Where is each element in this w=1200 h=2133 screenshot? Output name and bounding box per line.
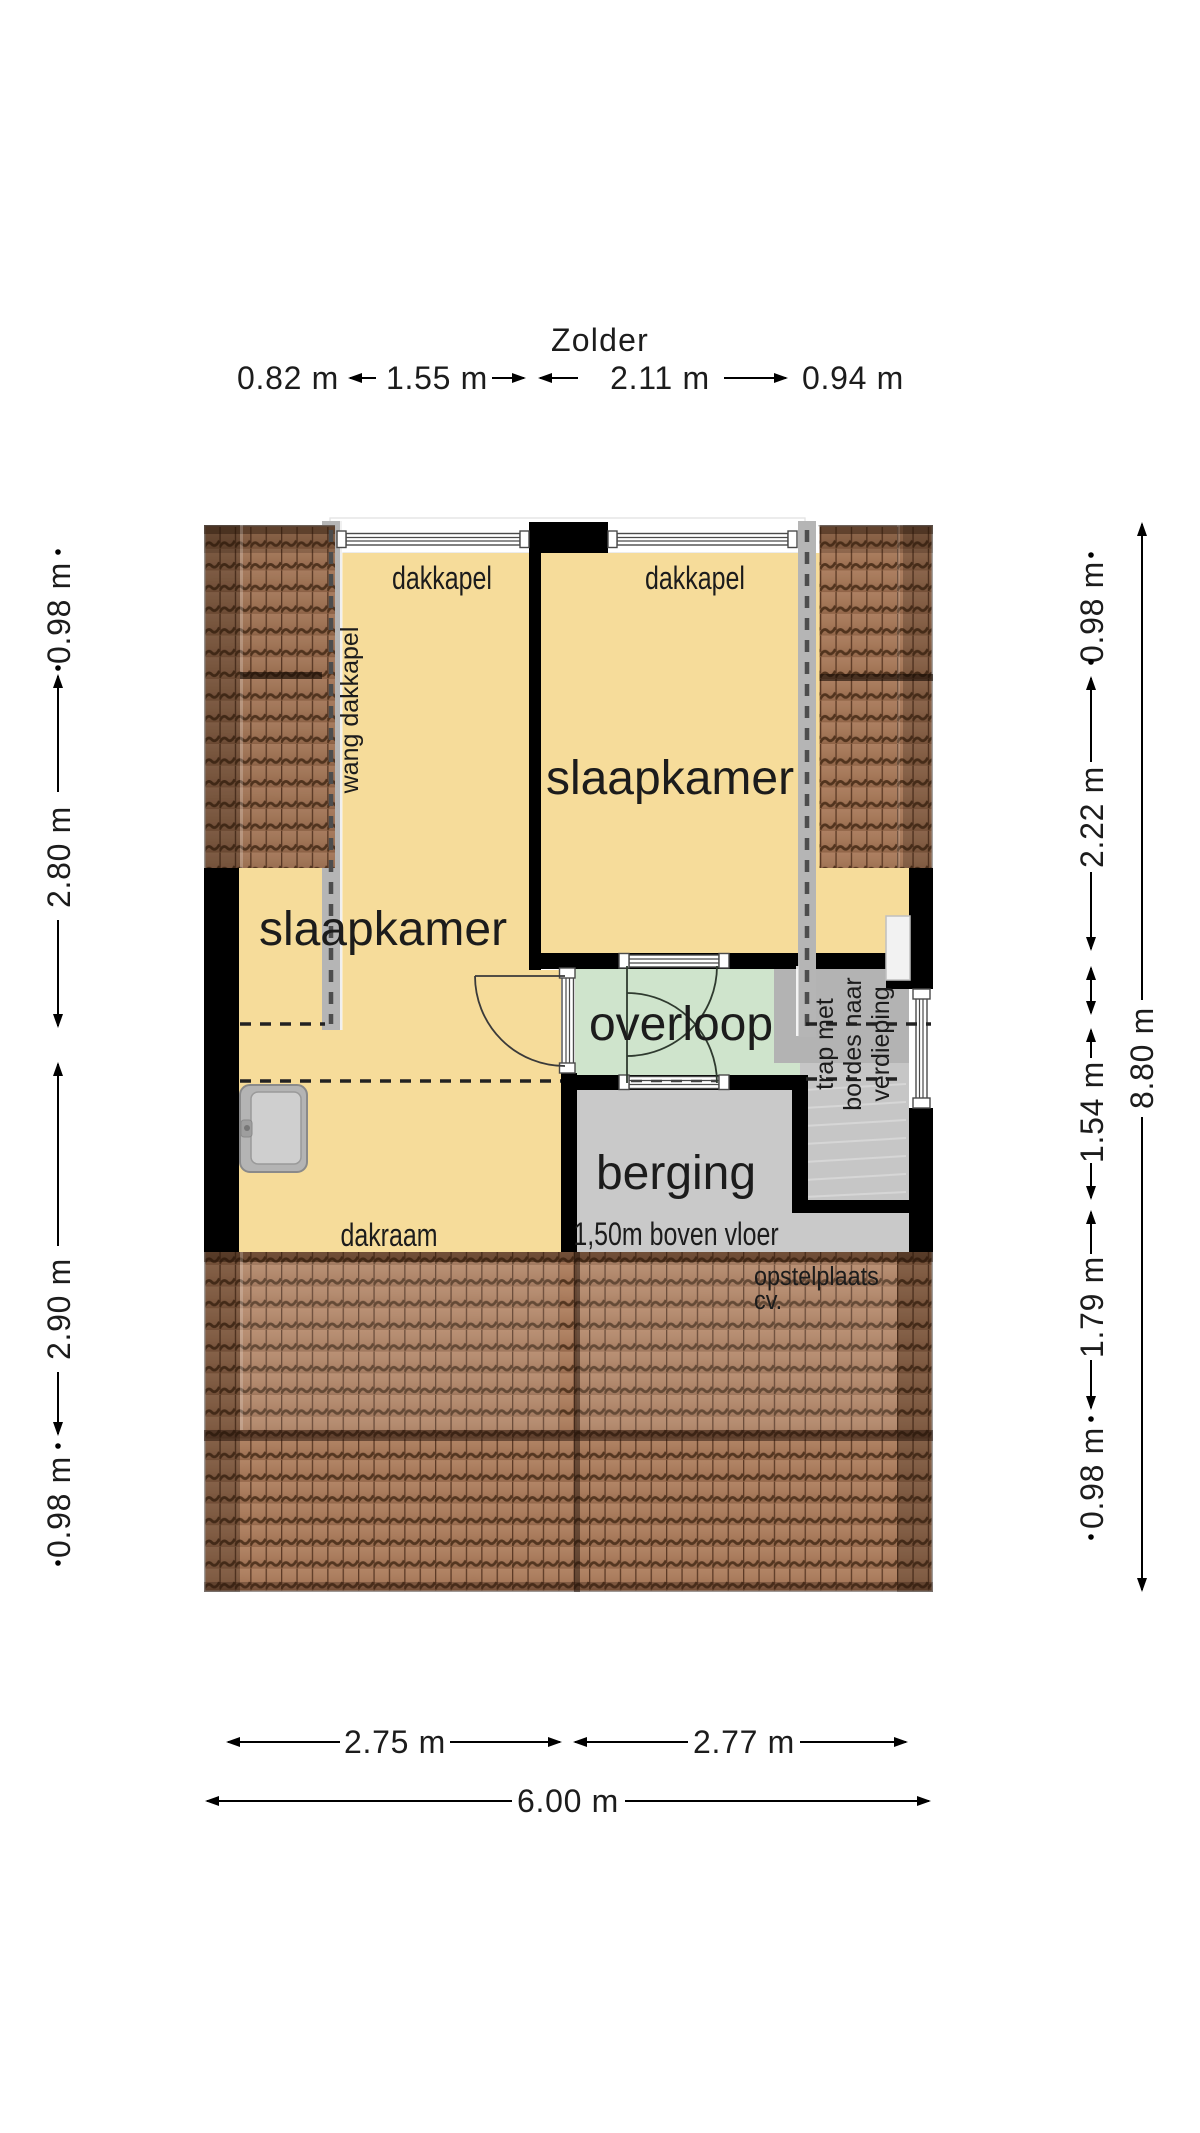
svg-text:2.90 m: 2.90 m — [41, 1258, 77, 1360]
svg-text:0.98 m: 0.98 m — [1074, 1427, 1110, 1529]
svg-text:0.94 m: 0.94 m — [802, 360, 904, 396]
svg-text:1.54 m: 1.54 m — [1074, 1061, 1110, 1163]
svg-text:slaapkamer: slaapkamer — [259, 903, 507, 956]
svg-text:8.80 m: 8.80 m — [1124, 1007, 1160, 1109]
svg-text:0.82 m: 0.82 m — [237, 360, 339, 396]
svg-text:2.80 m: 2.80 m — [41, 806, 77, 908]
svg-text:2.75 m: 2.75 m — [344, 1724, 446, 1760]
svg-text:dakkapel: dakkapel — [392, 561, 492, 597]
svg-text:0.98 m: 0.98 m — [41, 562, 77, 664]
svg-text:Zolder: Zolder — [551, 322, 649, 358]
svg-text:6.00 m: 6.00 m — [517, 1783, 619, 1819]
svg-text:slaapkamer: slaapkamer — [546, 752, 794, 805]
svg-text:1.79 m: 1.79 m — [1074, 1256, 1110, 1358]
svg-text:cv.: cv. — [754, 1287, 782, 1315]
svg-text:0.98 m: 0.98 m — [1074, 561, 1110, 663]
svg-text:1.55 m: 1.55 m — [386, 360, 488, 396]
svg-text:verdieping: verdieping — [867, 986, 895, 1101]
svg-text:trap met: trap met — [811, 998, 839, 1090]
svg-text:0.98 m: 0.98 m — [41, 1456, 77, 1558]
svg-text:2.11 m: 2.11 m — [610, 360, 710, 396]
svg-text:2.77 m: 2.77 m — [693, 1724, 795, 1760]
svg-text:dakraam: dakraam — [340, 1218, 437, 1254]
svg-text:berging: berging — [596, 1147, 756, 1200]
svg-text:wang dakkapel: wang dakkapel — [336, 627, 364, 795]
svg-text:2.22 m: 2.22 m — [1074, 766, 1110, 868]
svg-text:1,50m boven vloer: 1,50m boven vloer — [573, 1217, 779, 1253]
svg-text:dakkapel: dakkapel — [645, 561, 745, 597]
svg-text:overloop: overloop — [589, 998, 773, 1051]
svg-text:bordes naar: bordes naar — [839, 977, 867, 1110]
